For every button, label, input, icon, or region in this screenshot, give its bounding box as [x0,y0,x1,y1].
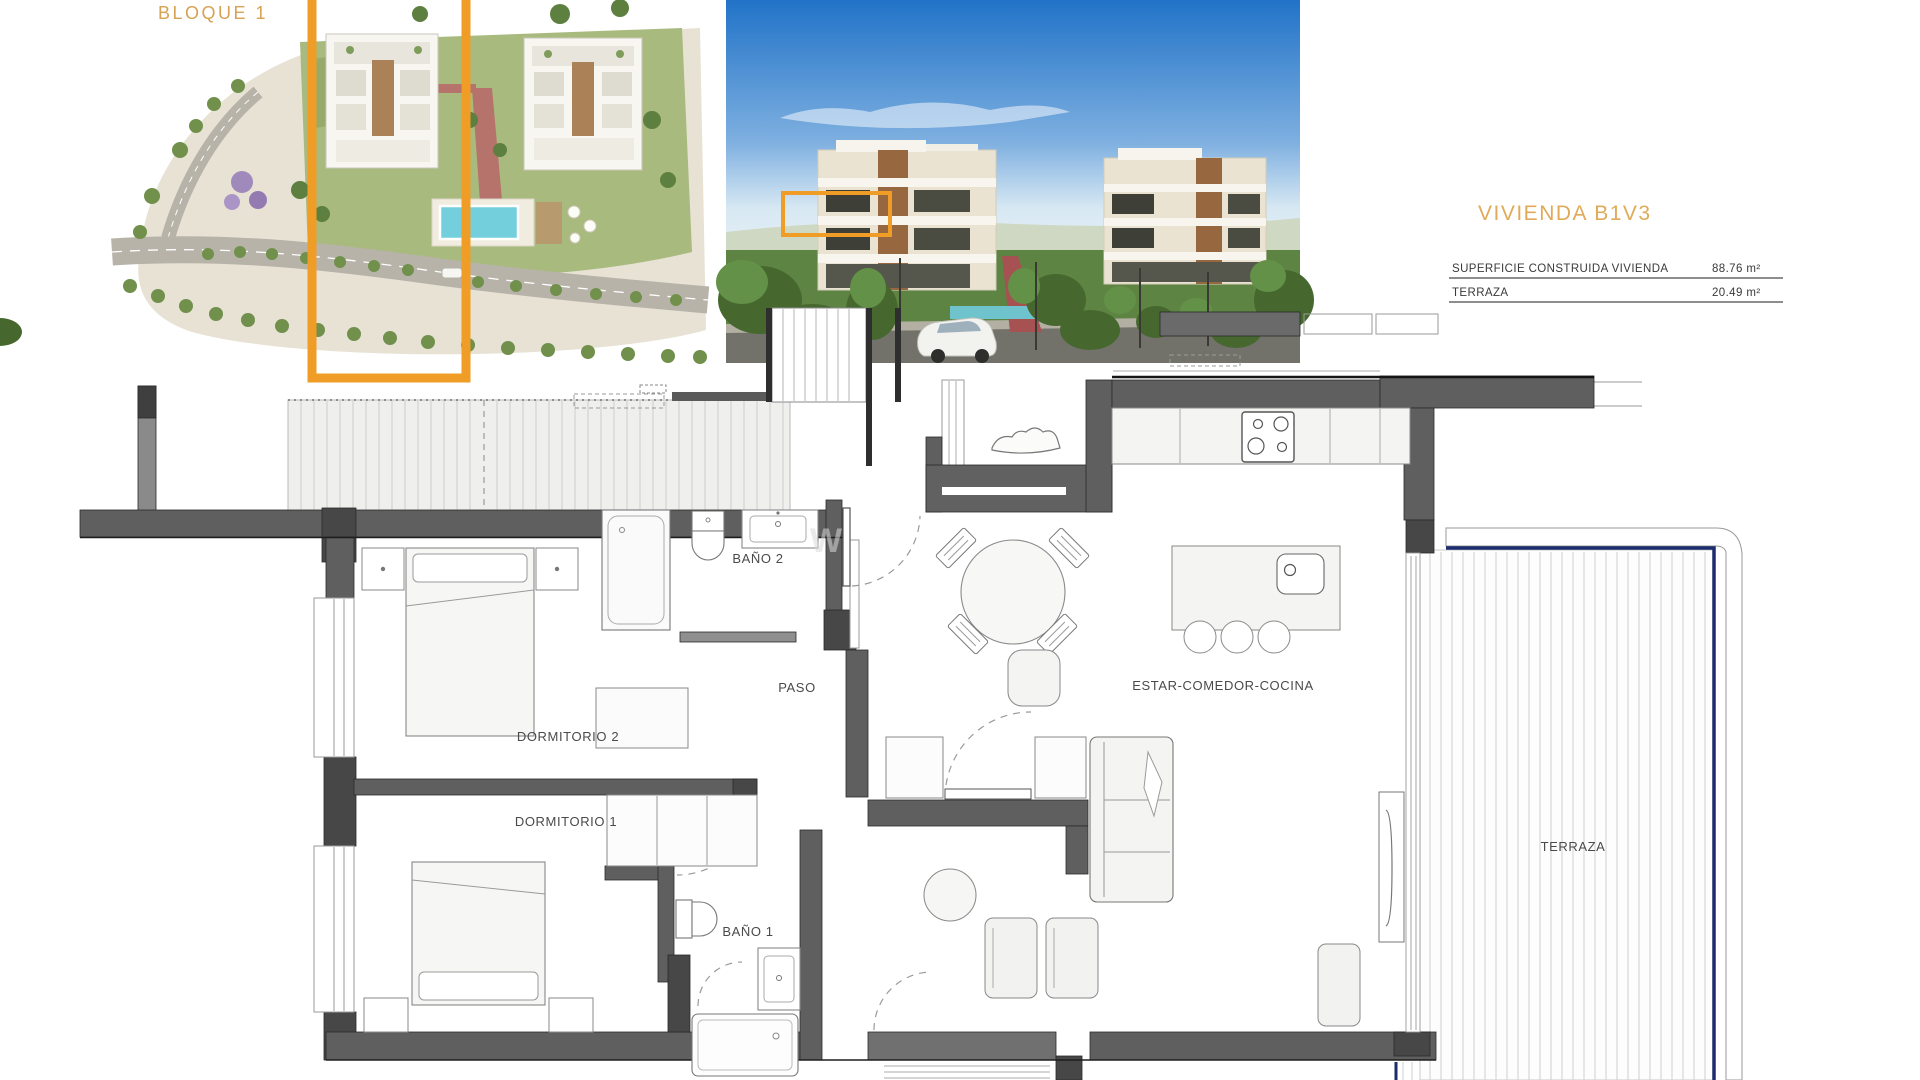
kitchen [1112,408,1410,653]
stool [1184,621,1216,653]
sink [742,510,818,548]
nightstand [364,998,408,1032]
ottoman [1008,650,1060,706]
room-label-paso: PASO [778,680,816,695]
room-label-bano-1: BAÑO 1 [722,924,773,939]
aerial-building-right [524,38,642,170]
photo-building-right [1104,148,1266,284]
stove [1242,412,1294,462]
bano-1: BAÑO 1 [676,900,800,1076]
room-label-dormitorio-1: DORMITORIO 1 [515,814,617,829]
pool [440,206,518,239]
property-plan-sheet: BLOQUE 1 [0,0,1920,1080]
car [442,268,462,278]
kitchen-island [1172,546,1340,653]
armchair [1318,944,1360,1026]
room-label-bano-2: BAÑO 2 [732,551,783,566]
unit-title: VIVIENDA B1V3 [1478,202,1652,225]
aerial-building-left [326,34,438,168]
door-leaf [945,789,1031,799]
pergola-deck [288,385,790,512]
stool [1258,621,1290,653]
nightstand [549,998,593,1032]
dining-area [935,527,1089,654]
floor-plan: TERRAZA [80,308,1742,1080]
side-table [924,869,976,921]
area-row-value: 20.49 m² [1712,287,1761,299]
pillow [419,972,538,1000]
aerial-site-render: BLOQUE 1 [112,0,708,378]
bano-2: BAÑO 2 [602,510,818,630]
photo-car [918,318,997,363]
room-label-terraza: TERRAZA [1541,839,1606,854]
photo-building-left [818,140,996,290]
door-leaf [843,508,850,586]
sink [758,948,800,1010]
pillow [413,554,527,582]
shower [602,510,670,630]
wardrobe [607,795,757,866]
room-label-dormitorio-2: DORMITORIO 2 [517,729,619,744]
stool [1221,621,1253,653]
terrace: TERRAZA [1396,528,1742,1080]
closet [1035,737,1086,798]
door-mat [992,428,1060,453]
watermark: W [810,522,843,560]
living-room: ESTAR-COMEDOR-COCINA [886,650,1404,1026]
block-label: BLOQUE 1 [158,3,268,23]
unit-info: VIVIENDA B1V3 SUPERFICIE CONSTRUIDA VIVI… [1449,202,1783,302]
closet [886,737,943,798]
island-sink [1277,554,1324,594]
area-row-label: TERRAZA [1452,287,1508,299]
toilet [676,900,717,938]
sofa [1090,737,1173,902]
toilet [692,511,724,560]
area-row-label: SUPERFICIE CONSTRUIDA VIVIENDA [1452,263,1668,275]
area-row-value: 88.76 m² [1712,263,1761,275]
room-label-estar: ESTAR-COMEDOR-COCINA [1132,678,1313,693]
shower-tray [692,1014,798,1076]
